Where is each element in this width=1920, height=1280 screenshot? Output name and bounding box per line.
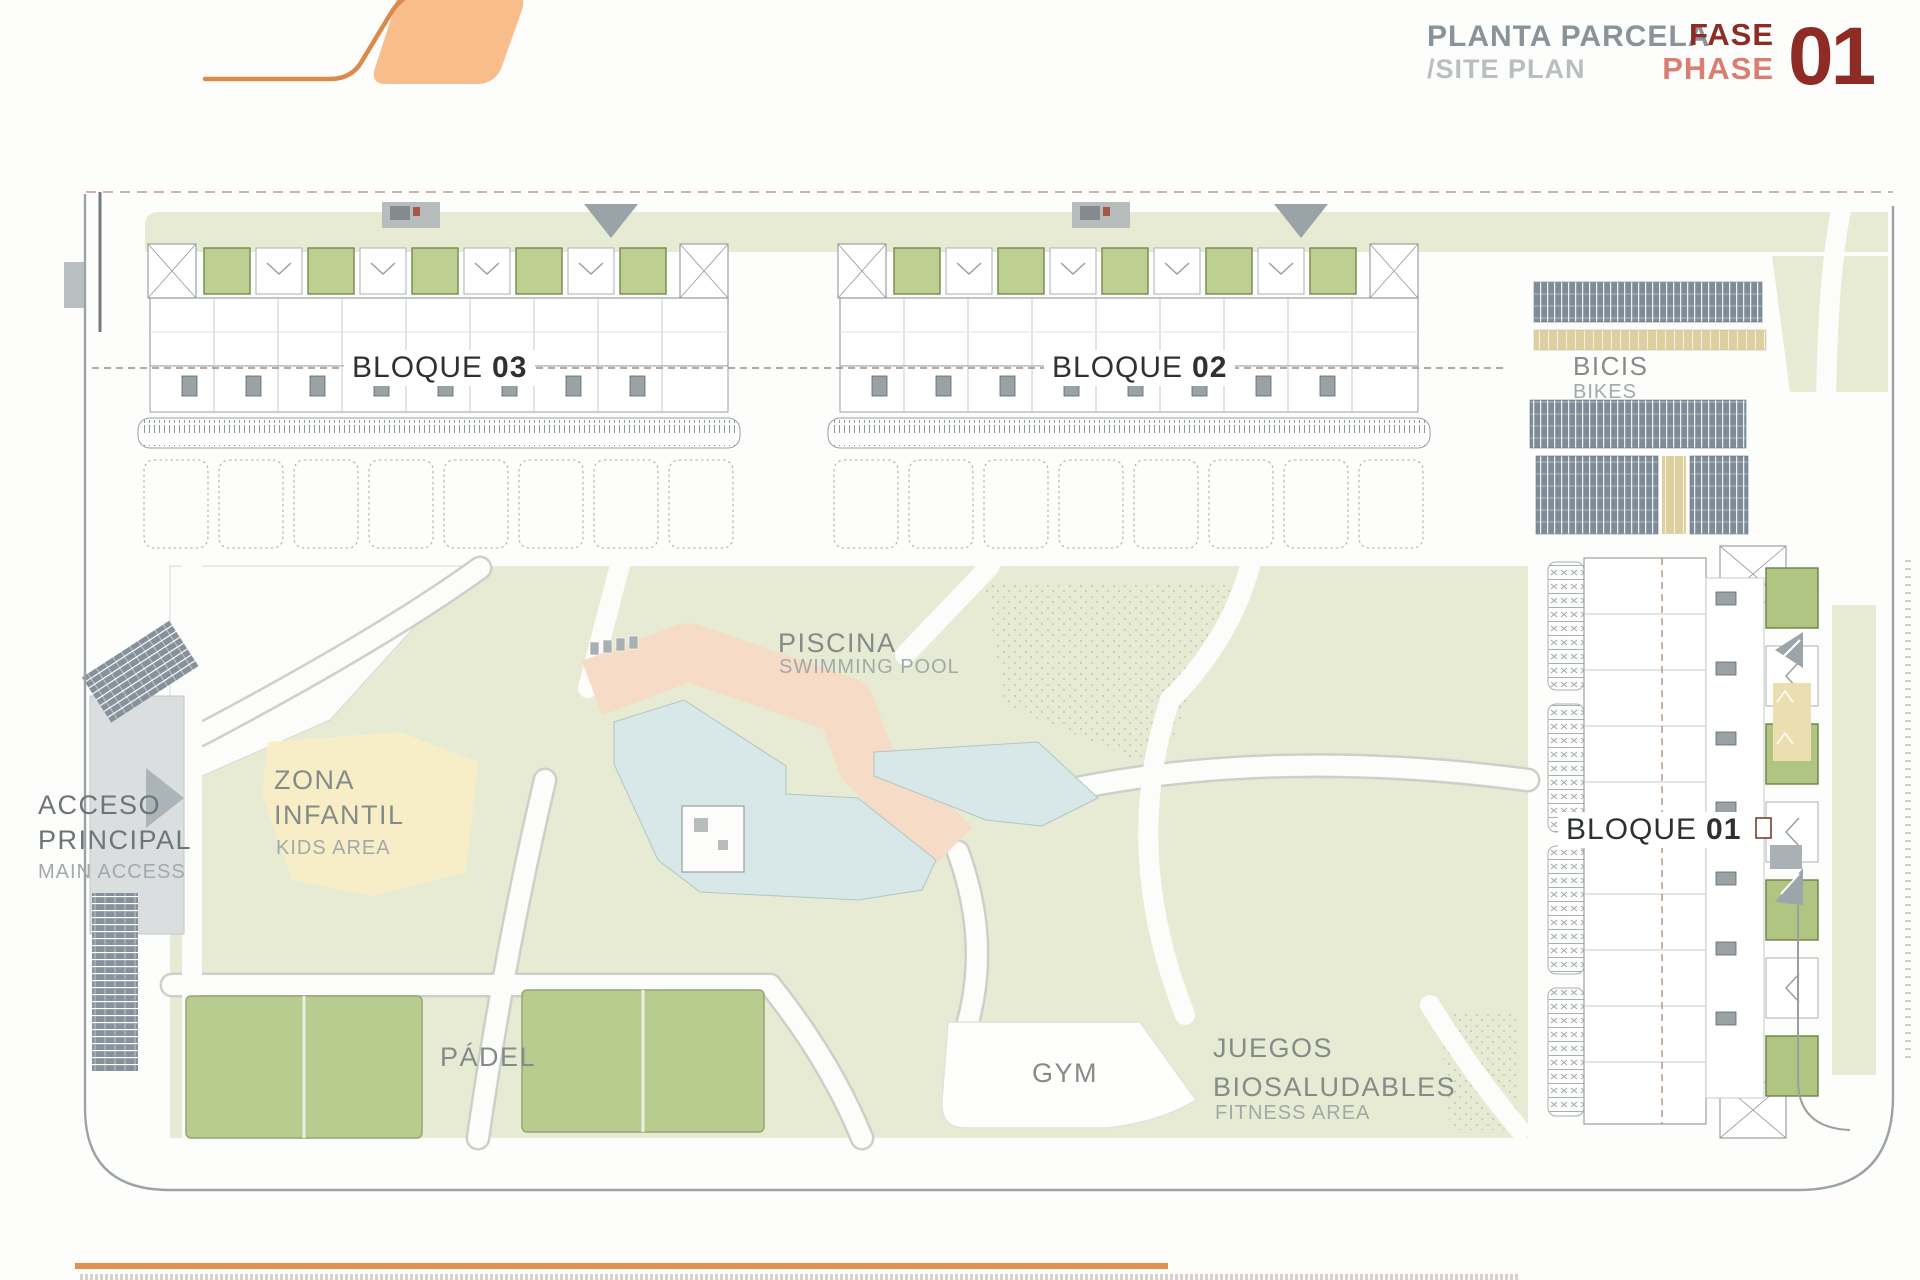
phase-word-en: PHASE: [1662, 52, 1774, 87]
bloque-01-number: 01: [1706, 813, 1741, 846]
phase-word-es: FASE: [1689, 18, 1774, 53]
footer-accent-rule: [75, 1263, 1168, 1269]
bikes-label-en: BIKES: [1573, 381, 1637, 403]
site-plan-canvas: [0, 0, 1920, 1280]
footer-fine-print-strip: [80, 1274, 1520, 1280]
fitness-label-es-1: JUEGOS: [1213, 1033, 1333, 1063]
gym-label: GYM: [1032, 1058, 1098, 1088]
access-label-en: MAIN ACCESS: [38, 861, 186, 883]
kids-label-en: KIDS AREA: [276, 837, 391, 859]
bloque-03-number: 03: [492, 351, 527, 384]
kids-label-es-2: INFANTIL: [274, 800, 405, 830]
fitness-label-es-2: BIOSALUDABLES: [1213, 1072, 1456, 1102]
plan-title-es: PLANTA PARCELA: [1427, 20, 1710, 54]
brand-logo: [205, 0, 523, 84]
bikes-area: [1530, 282, 1766, 534]
bloque-03-label: BLOQUE03: [344, 350, 535, 386]
plan-title-en: /SITE PLAN: [1427, 54, 1586, 84]
pool-label-es: PISCINA: [778, 628, 897, 658]
fitness-label-en: FITNESS AREA: [1215, 1102, 1370, 1124]
bloque-02-word: BLOQUE: [1052, 351, 1183, 384]
bloque-02-label: BLOQUE02: [1044, 350, 1235, 386]
bloque-02-number: 02: [1192, 351, 1227, 384]
bloque-01-word: BLOQUE: [1566, 813, 1697, 846]
fitness-equipment-pad: [682, 806, 744, 872]
pool-label-en: SWIMMING POOL: [779, 656, 960, 678]
phase-number: 01: [1788, 16, 1873, 98]
padel-label: PÁDEL: [440, 1042, 536, 1072]
bloque-01-label: BLOQUE01: [1558, 812, 1749, 848]
access-label-es-2: PRINCIPAL: [38, 825, 192, 855]
parking-canopy-lower: [92, 893, 138, 1071]
access-label-es-1: ACCESO: [38, 790, 161, 820]
bikes-label-es: BICIS: [1573, 352, 1648, 381]
bloque-03-word: BLOQUE: [352, 351, 483, 384]
kids-label-es-1: ZONA: [274, 765, 355, 795]
street-furniture: [64, 262, 84, 308]
